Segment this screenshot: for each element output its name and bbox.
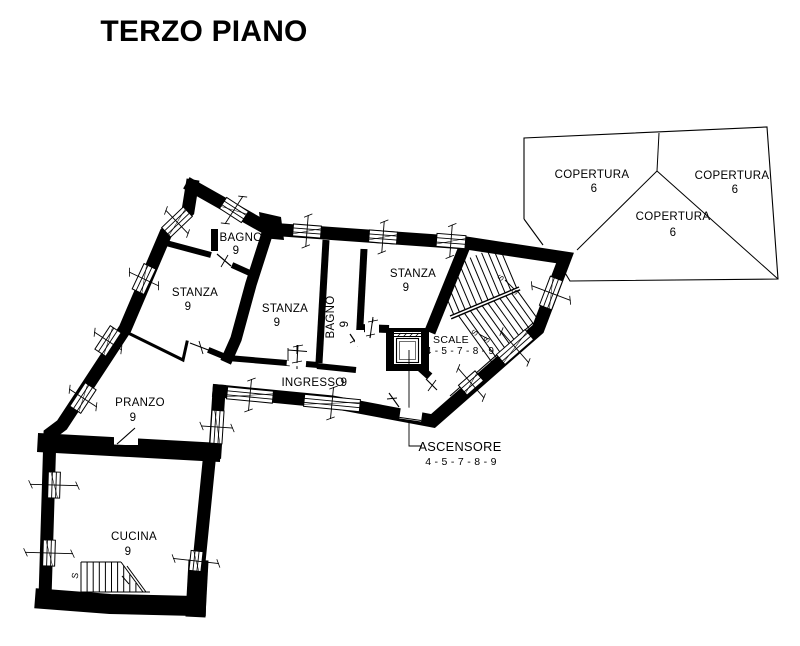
- svg-text:PRANZO: PRANZO: [115, 397, 165, 409]
- svg-text:9: 9: [339, 321, 351, 328]
- svg-text:6: 6: [670, 227, 677, 239]
- svg-text:COPERTURA: COPERTURA: [695, 170, 770, 182]
- svg-text:SCALE: SCALE: [433, 334, 469, 346]
- svg-text:6: 6: [732, 184, 739, 196]
- svg-text:STANZA: STANZA: [172, 287, 218, 299]
- svg-text:9: 9: [125, 546, 132, 558]
- svg-text:9: 9: [341, 377, 348, 389]
- svg-text:6: 6: [591, 183, 598, 195]
- svg-text:BAGNO: BAGNO: [219, 232, 262, 244]
- svg-text:4 - 5 - 7 - 8 - 9: 4 - 5 - 7 - 8 - 9: [426, 346, 495, 357]
- svg-text:9: 9: [403, 282, 410, 294]
- svg-text:ASCENSORE: ASCENSORE: [418, 439, 501, 454]
- svg-text:INGRESSO: INGRESSO: [281, 377, 344, 389]
- svg-text:9: 9: [130, 412, 137, 424]
- svg-text:9: 9: [233, 245, 240, 257]
- svg-text:COPERTURA: COPERTURA: [636, 211, 711, 223]
- svg-text:STANZA: STANZA: [390, 268, 436, 280]
- svg-text:TERZO PIANO: TERZO PIANO: [100, 15, 307, 48]
- svg-text:9: 9: [185, 301, 192, 313]
- svg-text:CUCINA: CUCINA: [111, 531, 157, 543]
- svg-text:BAGNO: BAGNO: [325, 295, 337, 338]
- svg-text:STANZA: STANZA: [262, 303, 308, 315]
- svg-text:4 - 5 - 7 - 8 - 9: 4 - 5 - 7 - 8 - 9: [425, 456, 497, 468]
- svg-text:COPERTURA: COPERTURA: [555, 169, 630, 181]
- svg-text:9: 9: [274, 317, 281, 329]
